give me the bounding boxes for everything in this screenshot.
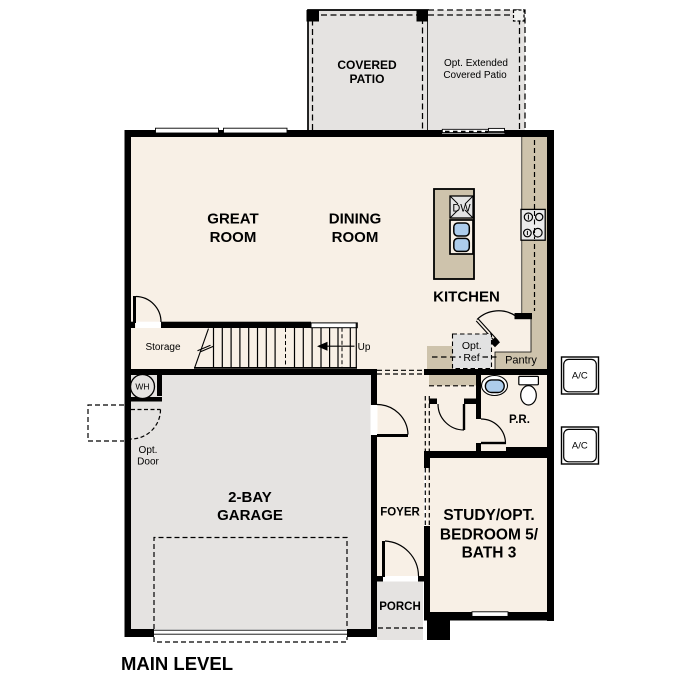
svg-text:COVERED: COVERED bbox=[337, 58, 397, 72]
svg-text:BATH 3: BATH 3 bbox=[462, 545, 517, 562]
svg-text:Up: Up bbox=[358, 342, 371, 353]
svg-text:Opt. Extended: Opt. Extended bbox=[444, 58, 508, 69]
svg-text:Ref: Ref bbox=[463, 352, 479, 364]
svg-text:KITCHEN: KITCHEN bbox=[433, 289, 500, 306]
svg-text:DW: DW bbox=[452, 203, 471, 215]
svg-text:STUDY/OPT.: STUDY/OPT. bbox=[443, 507, 534, 524]
svg-text:Covered Patio: Covered Patio bbox=[443, 70, 507, 81]
svg-text:DINING: DINING bbox=[329, 211, 382, 228]
svg-text:WH: WH bbox=[135, 382, 149, 392]
svg-text:2-BAY: 2-BAY bbox=[228, 489, 272, 506]
svg-text:Storage: Storage bbox=[145, 342, 180, 353]
svg-text:GARAGE: GARAGE bbox=[217, 507, 283, 524]
svg-text:A/C: A/C bbox=[572, 371, 588, 382]
svg-text:GREAT: GREAT bbox=[207, 211, 258, 228]
svg-text:Pantry: Pantry bbox=[505, 355, 537, 367]
svg-text:A/C: A/C bbox=[572, 441, 588, 452]
svg-text:P.R.: P.R. bbox=[509, 414, 530, 426]
svg-text:Opt.: Opt. bbox=[462, 340, 482, 352]
svg-text:PORCH: PORCH bbox=[379, 601, 421, 613]
svg-text:BEDROOM 5/: BEDROOM 5/ bbox=[440, 526, 539, 543]
svg-text:Opt.: Opt. bbox=[139, 445, 158, 456]
svg-text:PATIO: PATIO bbox=[350, 72, 385, 86]
svg-text:ROOM: ROOM bbox=[332, 229, 379, 246]
svg-text:Door: Door bbox=[137, 457, 159, 468]
svg-text:ROOM: ROOM bbox=[210, 229, 257, 246]
svg-text:FOYER: FOYER bbox=[380, 507, 420, 519]
svg-text:MAIN LEVEL: MAIN LEVEL bbox=[121, 653, 233, 674]
